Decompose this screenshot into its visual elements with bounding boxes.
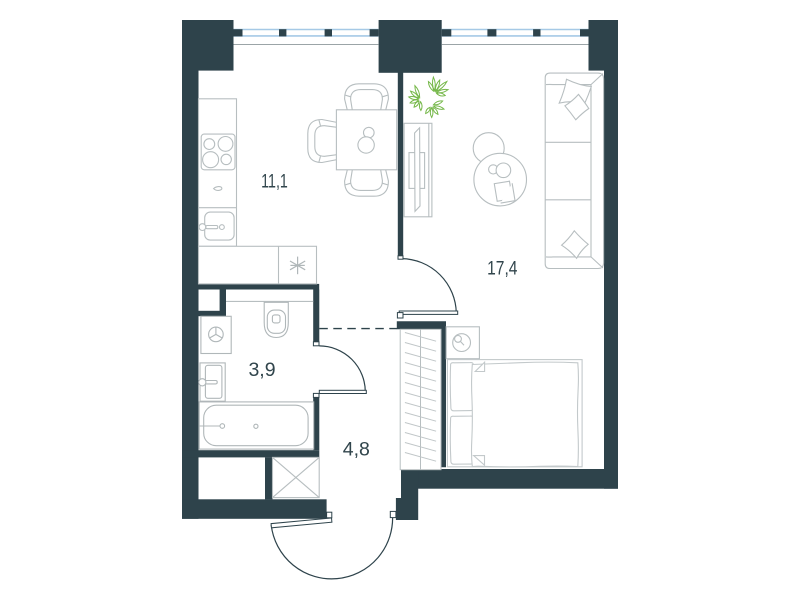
svg-text:11,1: 11,1 [261,170,288,192]
svg-text:3,9: 3,9 [248,359,275,381]
svg-text:17,4: 17,4 [487,257,517,279]
svg-text:4,8: 4,8 [343,439,370,461]
